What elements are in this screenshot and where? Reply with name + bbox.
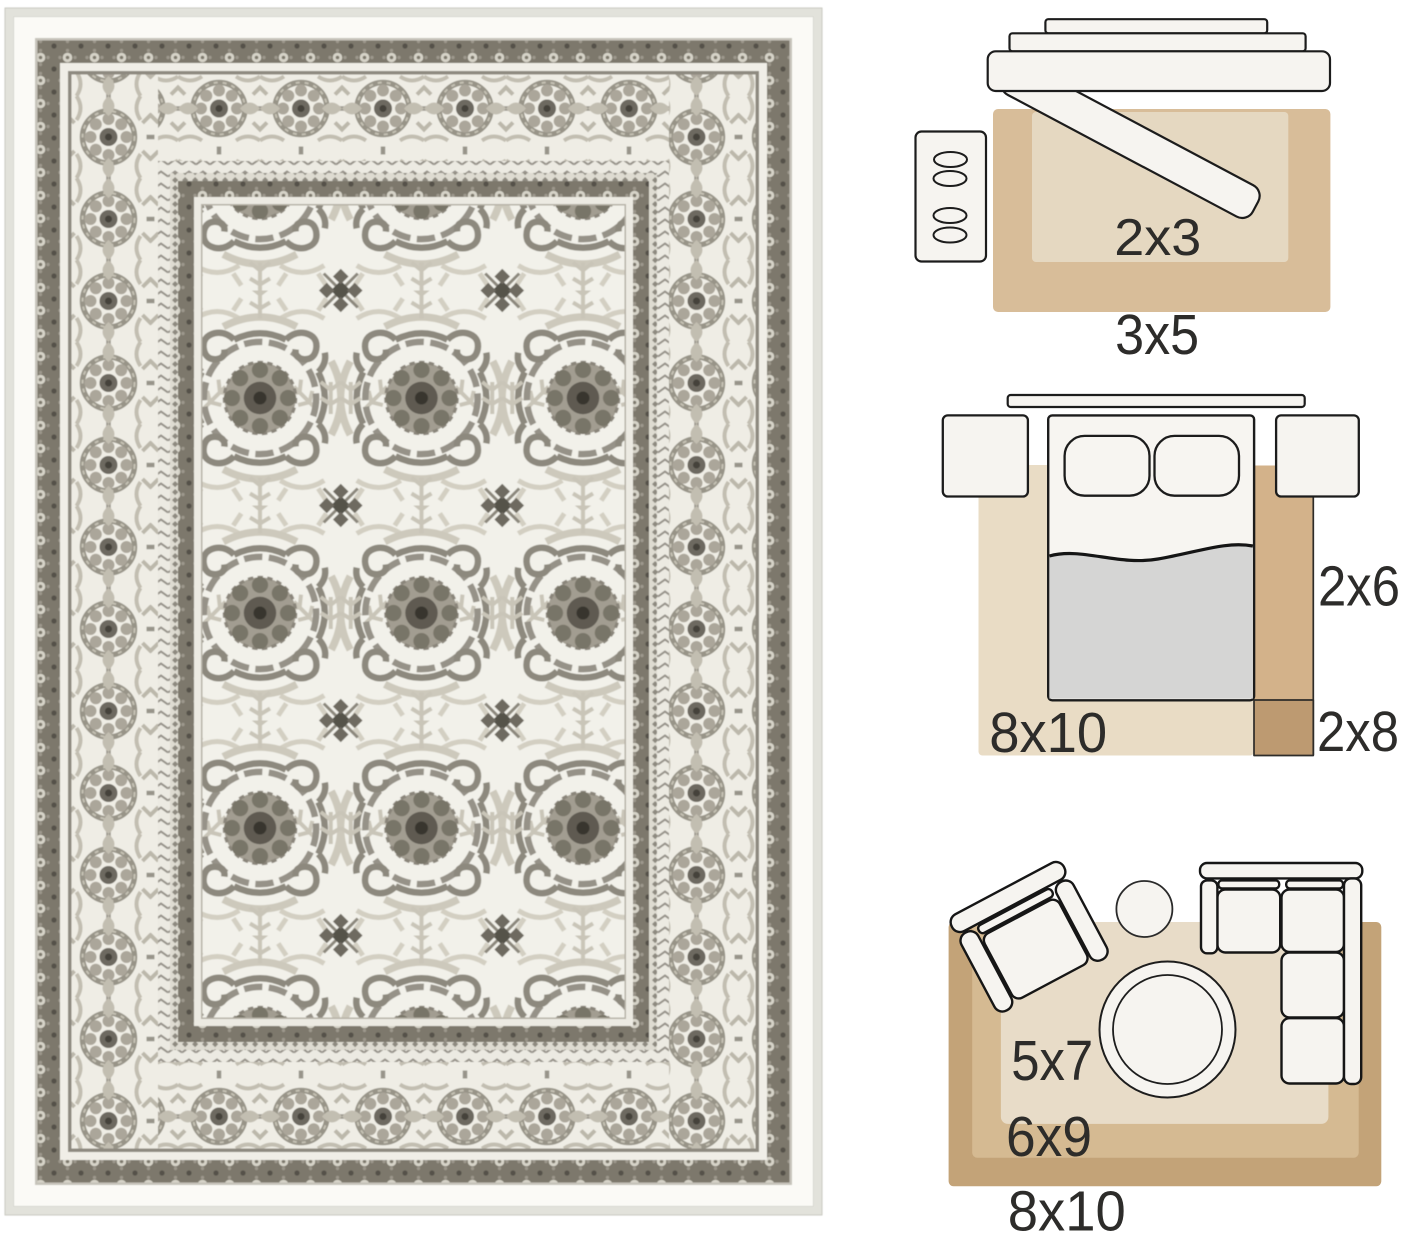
svg-text:8x10: 8x10 (989, 701, 1107, 765)
svg-text:2x8: 2x8 (1317, 700, 1399, 764)
svg-text:3x5: 3x5 (1115, 303, 1199, 367)
svg-text:5x7: 5x7 (1011, 1029, 1093, 1093)
svg-text:2x3: 2x3 (1114, 209, 1201, 267)
svg-text:2x6: 2x6 (1318, 555, 1400, 619)
svg-text:8x10: 8x10 (1008, 1180, 1126, 1234)
svg-text:6x9: 6x9 (1006, 1105, 1092, 1169)
